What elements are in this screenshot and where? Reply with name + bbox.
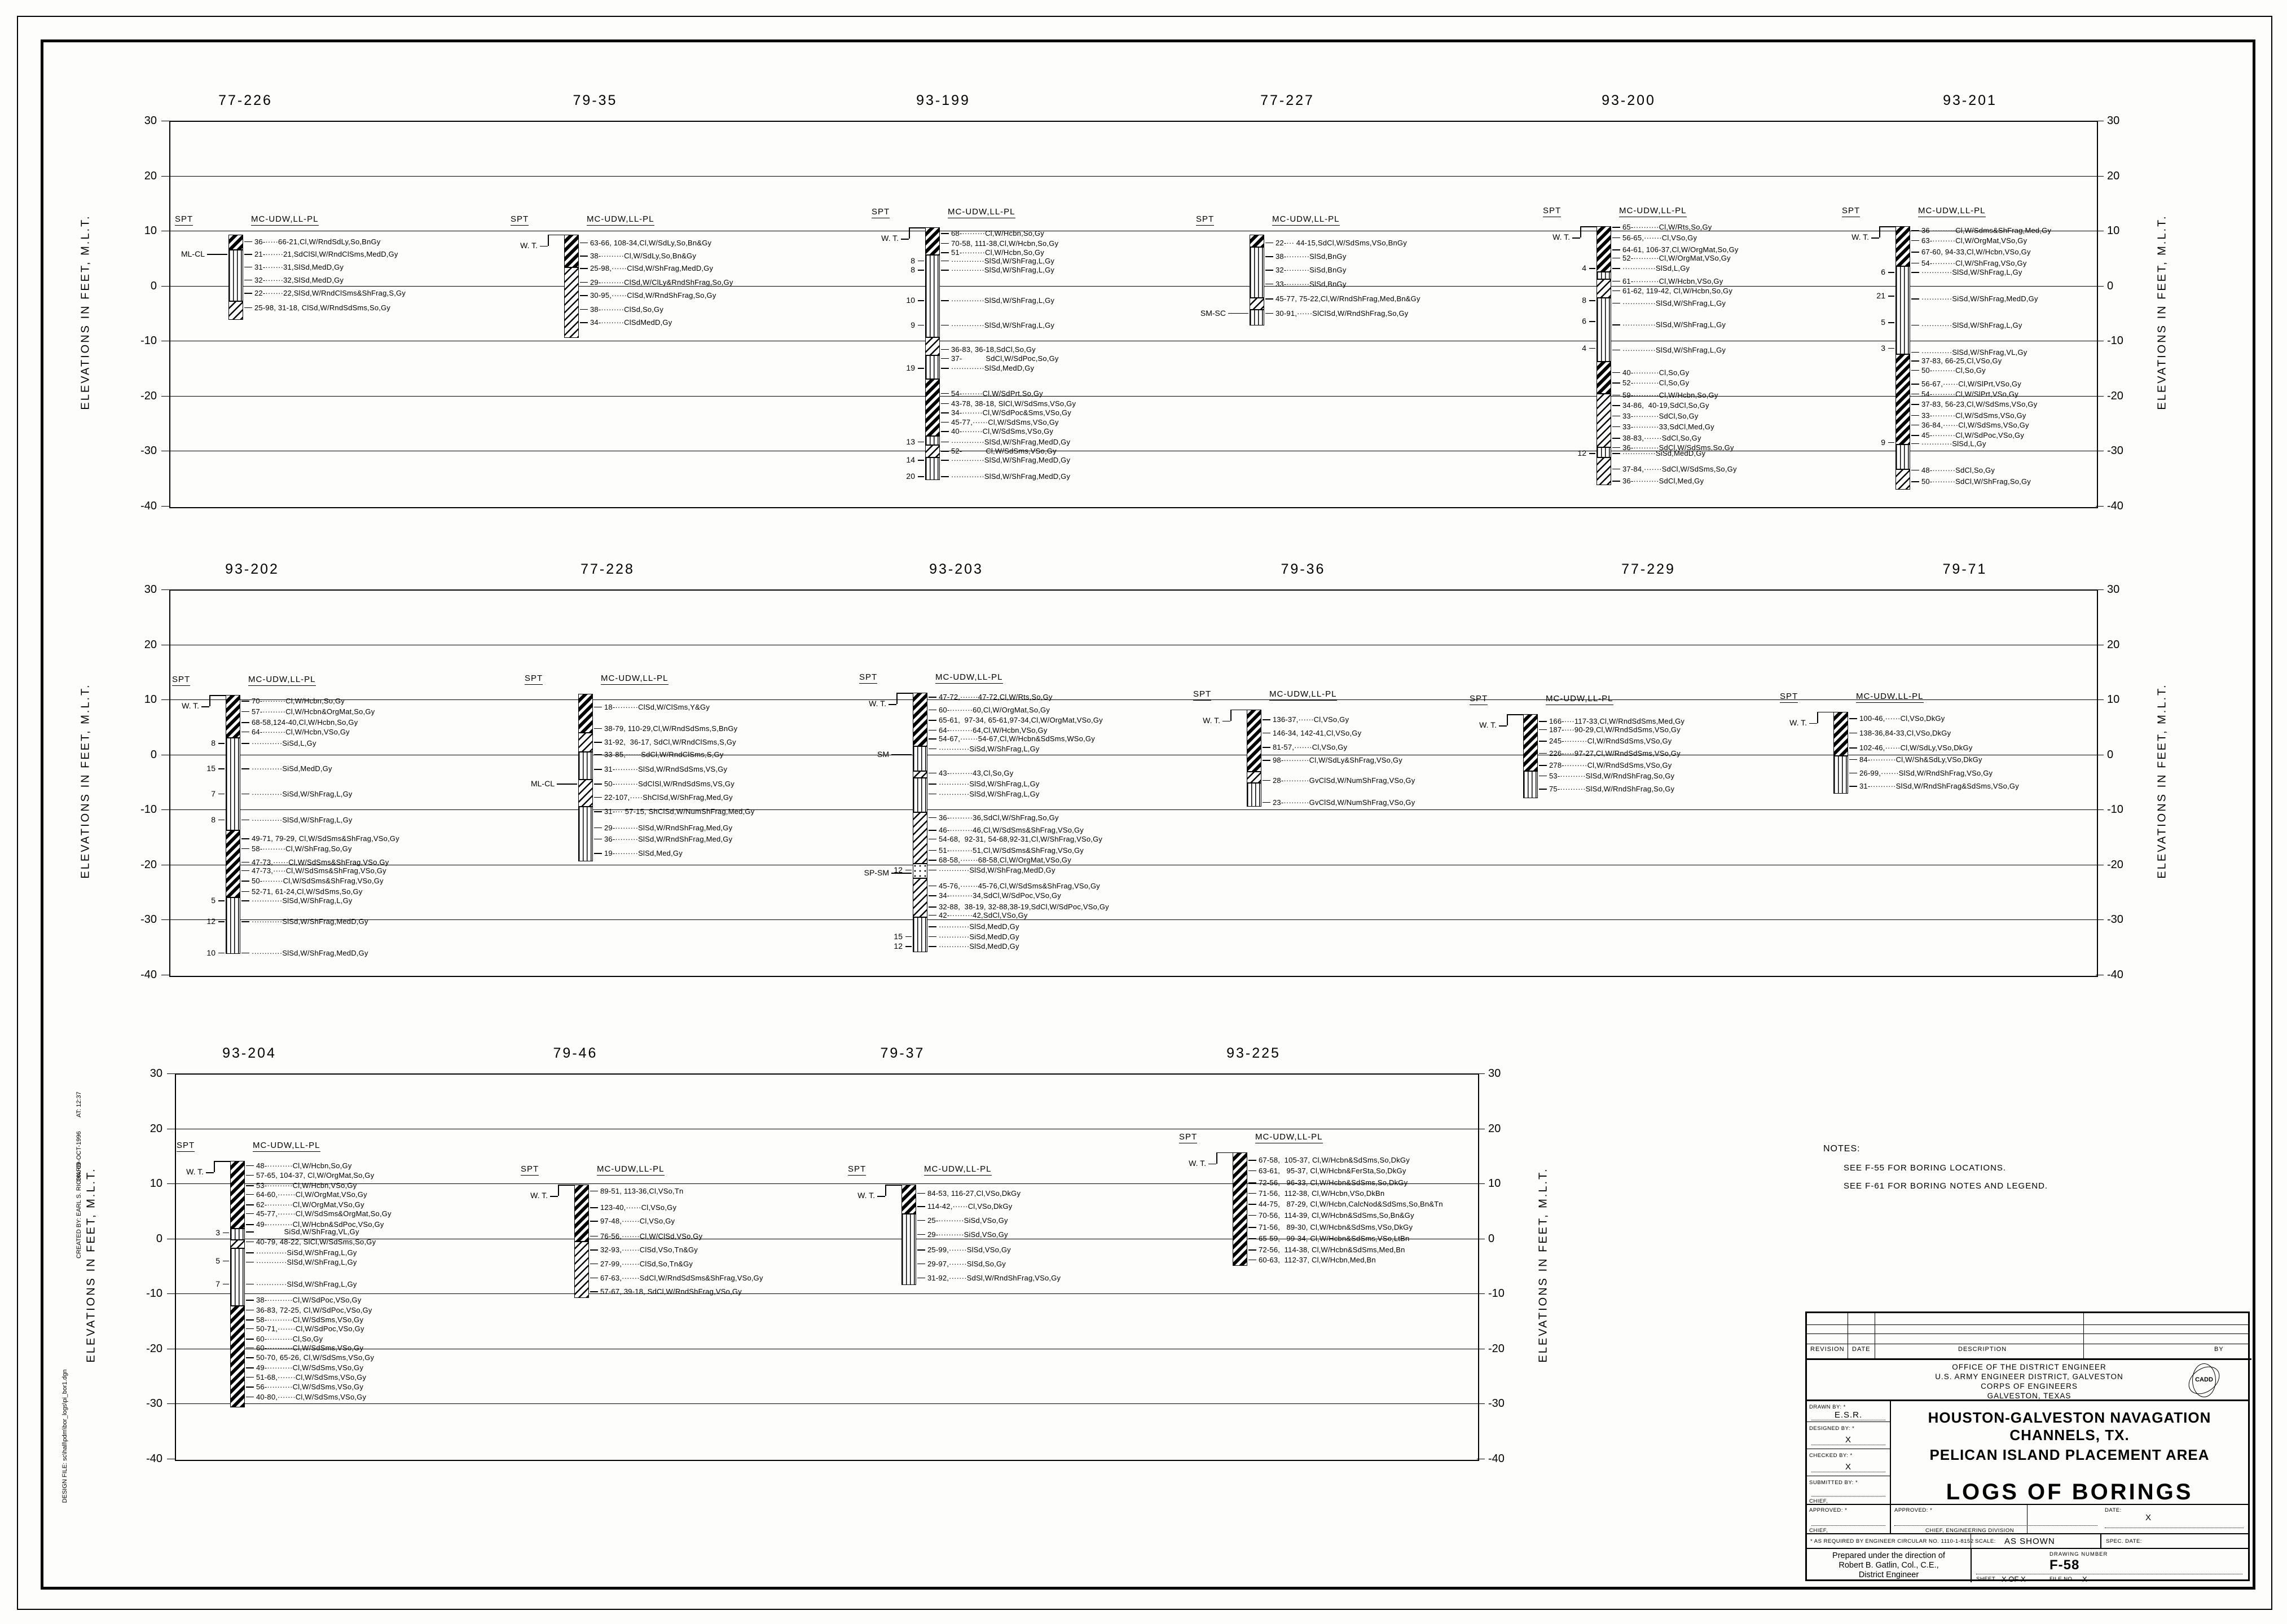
axis-tick-label: 20 (127, 639, 157, 652)
boring-entry: ············SiSd,W/ShFrag,MedD,Gy (1921, 294, 2038, 303)
boring-entry: 37-83, 66-25,Cl,VSo,Gy (1921, 357, 2002, 365)
boring-entry: 64-·········Cl,W/Hcbn,VSo,Gy (252, 728, 350, 736)
strata-segment (1247, 710, 1261, 772)
entry-tick (929, 794, 936, 795)
strata-segment (230, 1161, 245, 1229)
entry-tick (917, 1220, 925, 1221)
entry-tick (941, 422, 949, 423)
strata-segment (1523, 771, 1538, 798)
axis-tick-label: 10 (127, 225, 157, 237)
boring-entry: 70-·········Cl,W/Hcbn,So,Gy (252, 697, 345, 705)
scale-value: AS SHOWN (2004, 1537, 2055, 1546)
entry-tick (1849, 773, 1857, 774)
boring-entry: 31-·········SlSd,W/RndSdSms,VS,Gy (604, 765, 727, 773)
axis-tick (167, 1239, 175, 1239)
entry-tick (246, 1300, 254, 1301)
water-table-label: W. T. (1813, 232, 1869, 241)
entry-tick (1612, 469, 1620, 470)
water-table-line (1580, 226, 1581, 237)
gridline (175, 1403, 1477, 1404)
boring-entry: 43-78, 38-18, SlCl,W/SdSms,VSo,Gy (951, 399, 1076, 408)
spt-value: 5 (193, 896, 215, 905)
axis-tick (2096, 506, 2104, 507)
gridline (169, 396, 2096, 397)
water-table-line (1208, 1164, 1216, 1165)
axis-tick (167, 1349, 175, 1349)
axis-tick-label: -30 (2107, 913, 2123, 926)
axis-tick (2096, 341, 2104, 341)
gridline (169, 176, 2096, 177)
axis-tick-label: 20 (1488, 1123, 1501, 1136)
axis-tick-label: -20 (127, 859, 157, 872)
entry-tick (1612, 426, 1620, 428)
boring-entry: 84-··········Cl,W/Sh&SdLy,VSo,DkGy (1859, 755, 1982, 764)
boring-entry: 278-·········Cl,W/RndSdSms,VSo,Gy (1549, 761, 1672, 769)
entry-tick (1911, 325, 1919, 326)
spt-header: SPT (848, 1164, 866, 1176)
entry-tick (929, 860, 936, 861)
boring-entry: 187-····90-29,Cl,W/RndSdSms,VSo,Gy (1549, 725, 1681, 734)
spt-value: 7 (197, 1279, 220, 1288)
approved-strip: APPROVED: * CHIEF, APPROVED: * CHIEF, EN… (1807, 1504, 2248, 1533)
entry-tick (594, 853, 602, 854)
boring-entry: 51-·········51,Cl,W/SdSms&ShFrag,VSo,Gy (939, 846, 1084, 855)
boring-entry: 33-·········SlSd,BnGy (1276, 280, 1347, 288)
entry-tick (929, 738, 936, 740)
y-axis-title: ELEVATIONS IN FEET, M.L.T. (80, 601, 93, 962)
axis-tick (1477, 1073, 1485, 1074)
entry-tick (929, 906, 936, 908)
notes-heading: NOTES: (1823, 1144, 1861, 1154)
boring-entry: 60-63, 112-37, Cl,W/Hcbn,Med,Bn (1259, 1256, 1376, 1264)
spt-header: SPT (872, 207, 890, 218)
boring-title: 93-200 (1572, 93, 1685, 109)
water-table-line (1809, 723, 1817, 724)
entry-tick (1263, 719, 1270, 720)
spt-tick (223, 1284, 229, 1285)
spt-value: 8 (1564, 296, 1586, 305)
spt-header: SPT (172, 675, 190, 686)
strata-segment (1250, 235, 1264, 247)
entry-tick (941, 243, 949, 244)
boring-title: 93-199 (887, 93, 1000, 109)
entry-tick (917, 1264, 925, 1265)
boring-entry: 50-·········Cl,So,Gy (1921, 366, 1986, 375)
entry-tick (580, 243, 588, 244)
entry-tick (246, 1339, 254, 1340)
entry-tick (1612, 438, 1620, 439)
spt-tick (905, 936, 912, 938)
entry-tick (1911, 415, 1919, 416)
entry-tick (1248, 1249, 1256, 1251)
axis-tick (2096, 975, 2104, 975)
spt-tick (1888, 322, 1894, 323)
boring-entry: 70-56, 114-39, Cl,W/Hcbn&SdSms,So,Bn&Gy (1259, 1211, 1414, 1220)
entry-tick (1911, 370, 1919, 371)
entry-tick (1265, 243, 1273, 244)
water-table-label: W. T. (819, 1191, 875, 1200)
boring-entry: ·············SlSd,W/ShFrag,L,Gy (951, 266, 1054, 274)
entry-tick (580, 256, 588, 257)
entry-tick (241, 820, 249, 821)
spt-value: 3 (1863, 344, 1885, 353)
spt-tick (918, 442, 924, 443)
axis-tick-label: -40 (133, 1453, 162, 1465)
entry-tick (941, 325, 949, 326)
elevation-panel (169, 589, 2098, 977)
entry-tick (1849, 733, 1857, 734)
axis-tick-label: -30 (133, 1397, 162, 1410)
entry-tick (1911, 384, 1919, 385)
entry-tick (1612, 258, 1620, 259)
axis-tick (161, 231, 169, 231)
soil-class-label: SP-SM (804, 868, 889, 877)
boring-entry: ············SlSd,W/ShFrag,VL,Gy (1921, 348, 2027, 357)
boring-entry: ············SlSd,W/ShFrag,MedD,Gy (252, 949, 368, 957)
water-table-line (1817, 712, 1818, 723)
entry-tick (917, 1249, 925, 1251)
project-title-area: HOUSTON-GALVESTON NAVAGATION CHANNELS, T… (1891, 1401, 2248, 1504)
entry-tick (246, 1252, 254, 1253)
entry-tick (929, 730, 936, 731)
entry-tick (917, 1206, 925, 1207)
boring-entry: 29-·········SlSd,W/RndShFrag,Med,Gy (604, 824, 732, 832)
spt-header: SPT (521, 1164, 539, 1176)
boring-entry: 50-········Cl,W/SdSms&ShFrag,VSo,Gy (252, 877, 384, 885)
margin-created-by: CREATED BY: EARL S. RICHARD (76, 1098, 82, 1323)
spt-tick (1888, 272, 1894, 273)
boring-entry: ············SlSd,W/ShFrag,MedD,Gy (252, 917, 368, 926)
margin-design-file: DESIGN FILE: sc\hall\pdm\bor_logs\pi_bor… (61, 1295, 68, 1577)
axis-tick (161, 919, 169, 920)
entry-tick (590, 1291, 598, 1292)
spt-value: 12 (193, 917, 215, 926)
boring-entry: 146-34, 142-41,Cl,VSo,Gy (1273, 729, 1361, 737)
boring-entry: 64-61, 106-37,Cl,W/OrgMat,So,Gy (1622, 245, 1739, 254)
axis-tick-label: -20 (2107, 859, 2123, 872)
boring-entry: 32-·······32,SlSd,MedD,Gy (254, 276, 344, 284)
y-axis-title: ELEVATIONS IN FEET, M.L.T. (1537, 1085, 1550, 1446)
entry-tick (590, 1221, 598, 1222)
strata-segment (925, 227, 940, 255)
entry-tick (246, 1387, 254, 1388)
entry-tick (1911, 481, 1919, 482)
entry-tick (1911, 435, 1919, 436)
boring-entry: 40-········Cl,W/SdSms,VSo,Gy (951, 427, 1053, 435)
entry-tick (1612, 227, 1620, 228)
spt-tick (1888, 296, 1894, 297)
spt-tick (918, 460, 924, 461)
spt-tick (918, 300, 924, 301)
water-table-line (1817, 712, 1833, 713)
entry-tick (246, 1242, 254, 1243)
axis-tick (2096, 231, 2104, 231)
entry-tick (917, 1193, 925, 1194)
boring-entry: 89-51, 113-36,Cl,VSo,Tn (600, 1187, 683, 1195)
strata-segment (578, 694, 593, 732)
boring-entry: 38-··········Cl,W/SdPoc,VSo,Gy (256, 1296, 362, 1304)
boring-entry: 54-········Cl,W/SdPrt,So,Gy (951, 389, 1043, 398)
water-table-line (548, 235, 549, 246)
entry-tick (1612, 303, 1620, 304)
entry-tick (929, 886, 936, 887)
bottom-strip: Prepared under the direction of Robert B… (1807, 1548, 2248, 1581)
spt-value: 20 (892, 472, 915, 481)
axis-tick (167, 1403, 175, 1404)
entry-tick (1612, 324, 1620, 325)
boring-entry: 30-95,······ClSd,W/RndShFrag,So,Gy (590, 291, 716, 300)
water-table-label: W. T. (830, 699, 886, 708)
strata-segment (578, 733, 593, 752)
approved-left-label: APPROVED: * (1809, 1507, 1847, 1513)
gridline (175, 1293, 1477, 1294)
boring-title: 79-46 (519, 1045, 632, 1062)
boring-entry: 50-71,·······Cl,W/SdPoc,VSo,Gy (256, 1324, 364, 1333)
note-line: SEE F-55 FOR BORING LOCATIONS. (1844, 1163, 2006, 1173)
axis-tick (1477, 1349, 1485, 1349)
entry-tick (241, 794, 249, 795)
boring-entry: 60-·········60,Cl,W/OrgMat,So,Gy (939, 706, 1050, 714)
boring-entry: 136-37,······Cl,VSo,Gy (1273, 715, 1349, 724)
spt-value: 10 (892, 296, 915, 305)
date-value: X (2145, 1513, 2152, 1522)
water-table-line (901, 239, 909, 240)
entry-tick (1248, 1204, 1256, 1205)
strata-segment (901, 1185, 916, 1214)
gridline (169, 865, 2096, 865)
spt-tick (218, 921, 225, 922)
boring-entry: 67-58, 105-37, Cl,W/Hcbn&SdSms,So,DkGy (1259, 1156, 1410, 1164)
strata-segment (1596, 272, 1611, 279)
boring-entry: 54-·········Cl,W/SlPrt,VSo,Gy (1921, 390, 2018, 398)
entry-tick (941, 460, 949, 461)
boring-entry: 63-66, 108-34,Cl,W/SdLy,So,Bn&Gy (590, 239, 711, 247)
spt-tick (1888, 442, 1894, 443)
entry-tick (590, 1278, 598, 1279)
mc-udw-header: MC-UDW,LL-PL (1269, 689, 1337, 701)
spt-value: 9 (892, 320, 915, 329)
entry-tick (1248, 1260, 1256, 1261)
water-table-label: W. T. (842, 234, 899, 243)
agency-block: OFFICE OF THE DISTRICT ENGINEER U.S. ARM… (1807, 1358, 2251, 1401)
entry-tick (1612, 281, 1620, 282)
boring-entry: 64-·········64,Cl,W/Hcbn,VSo,Gy (939, 726, 1048, 734)
boring-entry: 54-68, 92-31, 54-68,92-31,Cl,W/ShFrag,VS… (939, 835, 1102, 843)
water-table-line (909, 227, 910, 239)
boring-entry: 49-71, 79-29, Cl,W/SdSms&ShFrag,VSo,Gy (252, 834, 399, 843)
entry-tick (1263, 802, 1270, 803)
boring-entry: 33-··········33,SdCl,Med,Gy (1622, 422, 1714, 431)
entry-tick (590, 1207, 598, 1208)
mc-udw-header: MC-UDW,LL-PL (948, 207, 1015, 218)
strata-segment (1233, 1152, 1247, 1266)
water-table-label: W. T. (491, 1191, 548, 1200)
spt-header: SPT (525, 674, 543, 685)
entry-tick (1911, 404, 1919, 405)
strata-segment (1247, 783, 1261, 807)
water-table-label: W. T. (143, 701, 199, 710)
agency-line: OFFICE OF THE DISTRICT ENGINEER (1807, 1362, 2251, 1372)
strata-segment (228, 235, 243, 250)
entry-tick (594, 828, 602, 829)
strata-segment (1895, 354, 1910, 444)
spec-date-label: SPEC. DATE: (2106, 1538, 2142, 1544)
boring-title: 77-228 (551, 561, 664, 578)
boring-entry: ············SlSd,W/ShFrag,L,Gy (252, 896, 353, 905)
boring-entry: 71-56, 112-38, Cl,W/Hcbn,VSo,DkBn (1259, 1189, 1384, 1198)
entry-tick (580, 295, 588, 296)
boring-entry: 63-61, 95-37, Cl,W/Hcbn&FerSta,So,DkGy (1259, 1167, 1406, 1175)
boring-entry: ·············SlSd,W/ShFrag,L,Gy (951, 296, 1054, 305)
boring-entry: 34-86, 40-19,SdCl,So,Gy (1622, 401, 1709, 410)
boring-entry: 63-·········Cl,W/OrgMat,VSo,Gy (1921, 236, 2027, 245)
boring-entry: 51-·········Cl,W/Hcbn,So,Gy (951, 248, 1044, 257)
spt-tick (1589, 268, 1595, 269)
spt-tick (218, 768, 225, 769)
entry-tick (1248, 1160, 1256, 1161)
entry-tick (1265, 313, 1273, 314)
boring-entry: 36-·········Cl,W/Sdms&ShFrag,Med,Gy (1921, 226, 2051, 235)
boring-entry: 25-98, 31-18, ClSd,W/RndSdSms,So,Gy (254, 303, 390, 312)
axis-tick-label: -10 (133, 1287, 162, 1300)
spt-tick (223, 1233, 229, 1234)
drawn-by-value: E.S.R. (1811, 1410, 1885, 1420)
entry-tick (941, 252, 949, 253)
entry-tick (241, 870, 249, 872)
entry-tick (941, 233, 949, 234)
axis-tick (2096, 919, 2104, 920)
axis-tick (1477, 1403, 1485, 1404)
boring-title: 79-35 (539, 93, 652, 109)
file-no-value: X (2082, 1575, 2087, 1583)
y-axis-title: ELEVATIONS IN FEET, M.L.T. (2156, 132, 2169, 493)
cadd-logo: CADD (2188, 1362, 2220, 1398)
boring-entry: 50-·········SdCl,W/ShFrag,So,Gy (1921, 477, 2031, 486)
mc-udw-header: MC-UDW,LL-PL (1546, 694, 1613, 705)
entry-tick (1849, 718, 1857, 719)
entry-tick (241, 900, 249, 901)
boring-entry: 18-·········ClSd,W/ClSms,Y&Gy (604, 703, 710, 711)
entry-tick (1911, 394, 1919, 395)
date-col-header: DATE (1852, 1346, 1871, 1353)
boring-entry: 42-·········42,SdCl,VSo,Gy (939, 911, 1028, 919)
strata-segment (913, 917, 927, 952)
entry-tick (241, 891, 249, 892)
boring-entry: 37- SdCl,W/SdPoc,So,Gy (951, 354, 1059, 363)
entry-tick (929, 817, 936, 818)
entry-tick (929, 915, 936, 916)
axis-tick (161, 396, 169, 397)
boring-entry: 27-99,·······ClSd,So,Tn&Gy (600, 1260, 693, 1268)
entry-tick (590, 1191, 598, 1192)
boring-entry: ············SlSd,L,Gy (1921, 439, 1986, 448)
boring-entry: 36-·········36,SdCl,W/ShFrag,So,Gy (939, 813, 1059, 822)
boring-entry: 48-··········Cl,W/Hcbn,So,Gy (256, 1161, 352, 1170)
entry-tick (1612, 395, 1620, 396)
gridline (169, 286, 2096, 287)
axis-tick-label: 30 (1488, 1067, 1501, 1080)
entry-tick (246, 1377, 254, 1378)
boring-entry: 72-56, 96-33, Cl,W/Hcbn&SdSms,So,DkGy (1259, 1178, 1408, 1187)
water-table-line (540, 246, 548, 247)
entry-tick (1263, 733, 1270, 734)
entry-tick (580, 268, 588, 269)
entry-tick (1248, 1193, 1256, 1194)
mc-udw-header: MC-UDW,LL-PL (1619, 206, 1687, 217)
entry-tick (594, 797, 602, 798)
entry-tick (1248, 1238, 1256, 1239)
axis-tick-label: 10 (2107, 225, 2119, 237)
entry-tick (246, 1194, 254, 1195)
entry-tick (246, 1204, 254, 1205)
axis-tick-label: 10 (2107, 693, 2119, 706)
strata-segment (226, 897, 240, 954)
strata-segment (1895, 266, 1910, 354)
strata-segment (228, 301, 243, 320)
boring-entry: 45-·········Cl,W/SdPoc,VSo,Gy (1921, 431, 2024, 439)
boring-entry: 36-83, 36-18,SdCl,So,Gy (951, 345, 1036, 354)
boring-entry: 40-79, 48-22, SlCl,W/SdSms,So,Gy (256, 1238, 376, 1246)
water-table-line (896, 693, 898, 704)
boring-entry: 57-67, 39-18, SdCl,W/RndShFrag,VSo,Gy (600, 1287, 742, 1296)
spt-value: 15 (880, 932, 903, 941)
boring-entry: 70-58, 111-38,Cl,W/Hcbn,So,Gy (951, 239, 1058, 248)
boring-entry: 26-99,·······SlSd,W/RndShFrag,VSo,Gy (1859, 769, 1993, 777)
axis-tick-label: 30 (2107, 583, 2119, 596)
date-label: DATE: (2105, 1507, 2122, 1513)
water-table-line (1572, 237, 1580, 239)
boring-entry: ·············SiSd,MedD,Gy (1622, 449, 1705, 457)
boring-title: 93-225 (1197, 1045, 1310, 1062)
entry-tick (580, 282, 588, 283)
entry-tick (929, 830, 936, 831)
boring-entry: 59-··········Cl,W/Hcbn,So,Gy (1622, 391, 1718, 399)
entry-tick (941, 368, 949, 369)
entry-tick (1248, 1170, 1256, 1172)
strata-segment (1596, 226, 1611, 272)
water-table-line (1879, 226, 1880, 237)
spt-header: SPT (1470, 694, 1488, 705)
entry-tick (1539, 741, 1547, 742)
gridline (169, 699, 2096, 700)
water-table-line (558, 1185, 559, 1196)
boring-entry: ·············SlSd,W/ShFrag,L,Gy (951, 257, 1054, 265)
soil-class-leader (891, 873, 912, 874)
axis-tick (2096, 755, 2104, 755)
axis-tick-label: -40 (127, 969, 157, 982)
gridline (169, 341, 2096, 341)
strata-segment (226, 738, 240, 830)
cadd-logo-text: CADD (2188, 1376, 2220, 1383)
checked-by-value: X (1811, 1462, 1885, 1472)
axis-tick-label: 10 (133, 1177, 162, 1190)
axis-tick-label: 0 (2107, 749, 2113, 762)
boring-entry: ············SlSd,W/ShFrag,MedD,Gy (939, 866, 1055, 874)
spt-tick (1589, 348, 1595, 349)
entry-tick (590, 1236, 598, 1237)
soil-class-leader (207, 254, 227, 255)
axis-tick (167, 1073, 175, 1074)
axis-tick-label: -40 (2107, 500, 2123, 513)
water-table-line (209, 695, 210, 706)
entry-tick (1911, 230, 1919, 231)
axis-tick-label: 30 (127, 115, 157, 127)
axis-tick-label: 20 (2107, 639, 2119, 652)
boring-entry: 53-··········SlSd,W/RndShFrag,So,Gy (1549, 772, 1674, 780)
entry-tick (594, 707, 602, 708)
entry-tick (241, 838, 249, 839)
entry-tick (1911, 352, 1919, 353)
